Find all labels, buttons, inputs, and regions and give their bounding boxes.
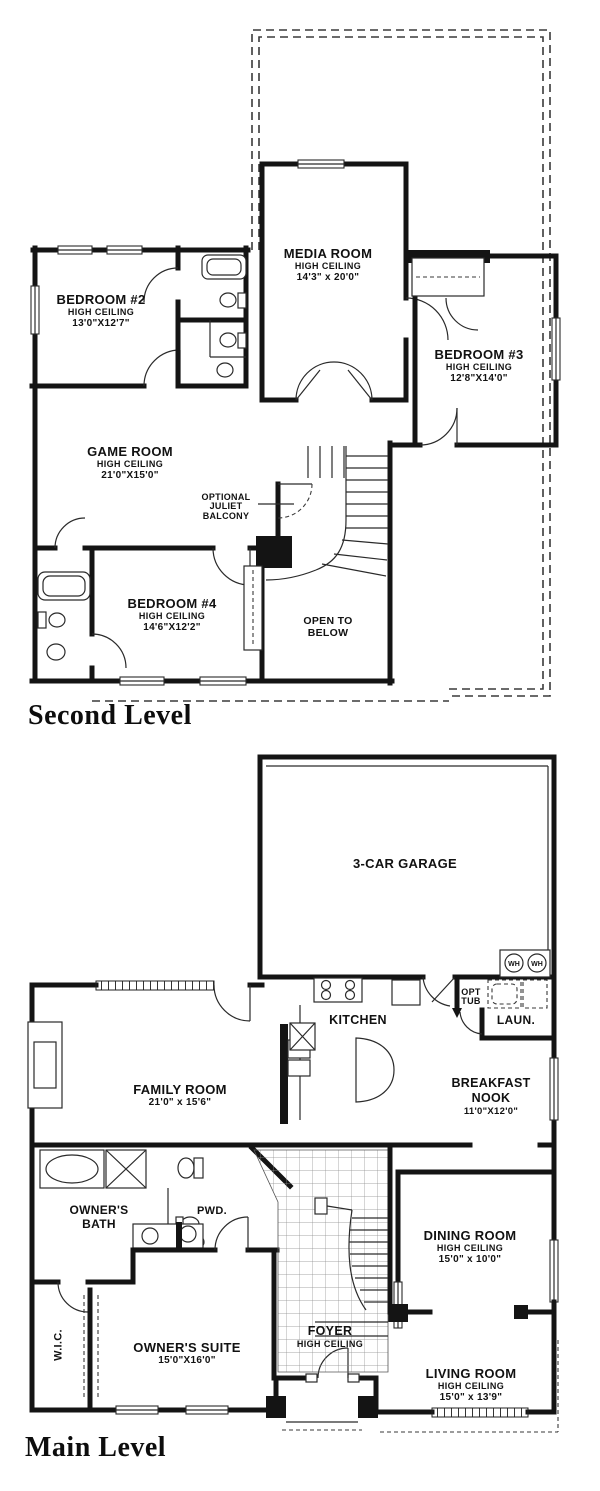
room-label-owners-bath: OWNER'S BATH	[63, 1203, 135, 1231]
room-label-kitchen: KITCHEN	[329, 1013, 387, 1028]
bath4-fixtures	[38, 572, 90, 660]
room-label-media-room: MEDIA ROOM HIGH CEILING 14'3" x 20'0"	[284, 246, 372, 284]
svg-text:WH: WH	[508, 961, 520, 968]
floor-plan-page: WH WH	[0, 0, 600, 1491]
room-label-family-room: FAMILY ROOM 21'0" x 15'6"	[133, 1082, 227, 1109]
room-label-foyer: FOYER HIGH CEILING	[297, 1324, 363, 1349]
room-label-breakfast-nook: BREAKFAST NOOK 11'0"X12'0"	[449, 1076, 533, 1117]
room-label-garage: 3-CAR GARAGE	[353, 856, 457, 871]
annotation-open-to-below: OPEN TO BELOW	[293, 615, 363, 640]
room-label-living-room: LIVING ROOM HIGH CEILING 15'0" x 13'9"	[426, 1366, 517, 1404]
room-label-dining-room: DINING ROOM HIGH CEILING 15'0" x 10'0"	[424, 1228, 517, 1266]
annotation-opt-tub: OPT TUB	[458, 988, 484, 1007]
garage-walls	[260, 757, 554, 1018]
room-label-bedroom-3: BEDROOM #3 HIGH CEILING 12'8"X14'0"	[435, 347, 524, 385]
annotation-juliet-balcony: OPTIONAL JULIET BALCONY	[195, 493, 257, 521]
room-label-wic: W.I.C.	[53, 1329, 66, 1361]
room-label-bedroom-4: BEDROOM #4 HIGH CEILING 14'6"X12'2"	[128, 596, 217, 634]
room-label-owners-suite: OWNER'S SUITE 15'0"X16'0"	[133, 1340, 240, 1367]
second-level-walls	[31, 160, 560, 685]
svg-text:WH: WH	[531, 961, 543, 968]
water-heater-icon: WH WH	[500, 950, 550, 977]
room-label-powder-room: PWD.	[197, 1205, 227, 1218]
main-level-heading: Main Level	[25, 1432, 166, 1464]
room-label-bedroom-2: BEDROOM #2 HIGH CEILING 13'0"X12'7"	[57, 292, 146, 330]
second-level-heading: Second Level	[28, 700, 192, 732]
hall-bath-fixtures	[202, 255, 246, 377]
room-label-laundry: LAUN.	[497, 1013, 535, 1027]
room-label-game-room: GAME ROOM HIGH CEILING 21'0"X15'0"	[87, 444, 173, 482]
